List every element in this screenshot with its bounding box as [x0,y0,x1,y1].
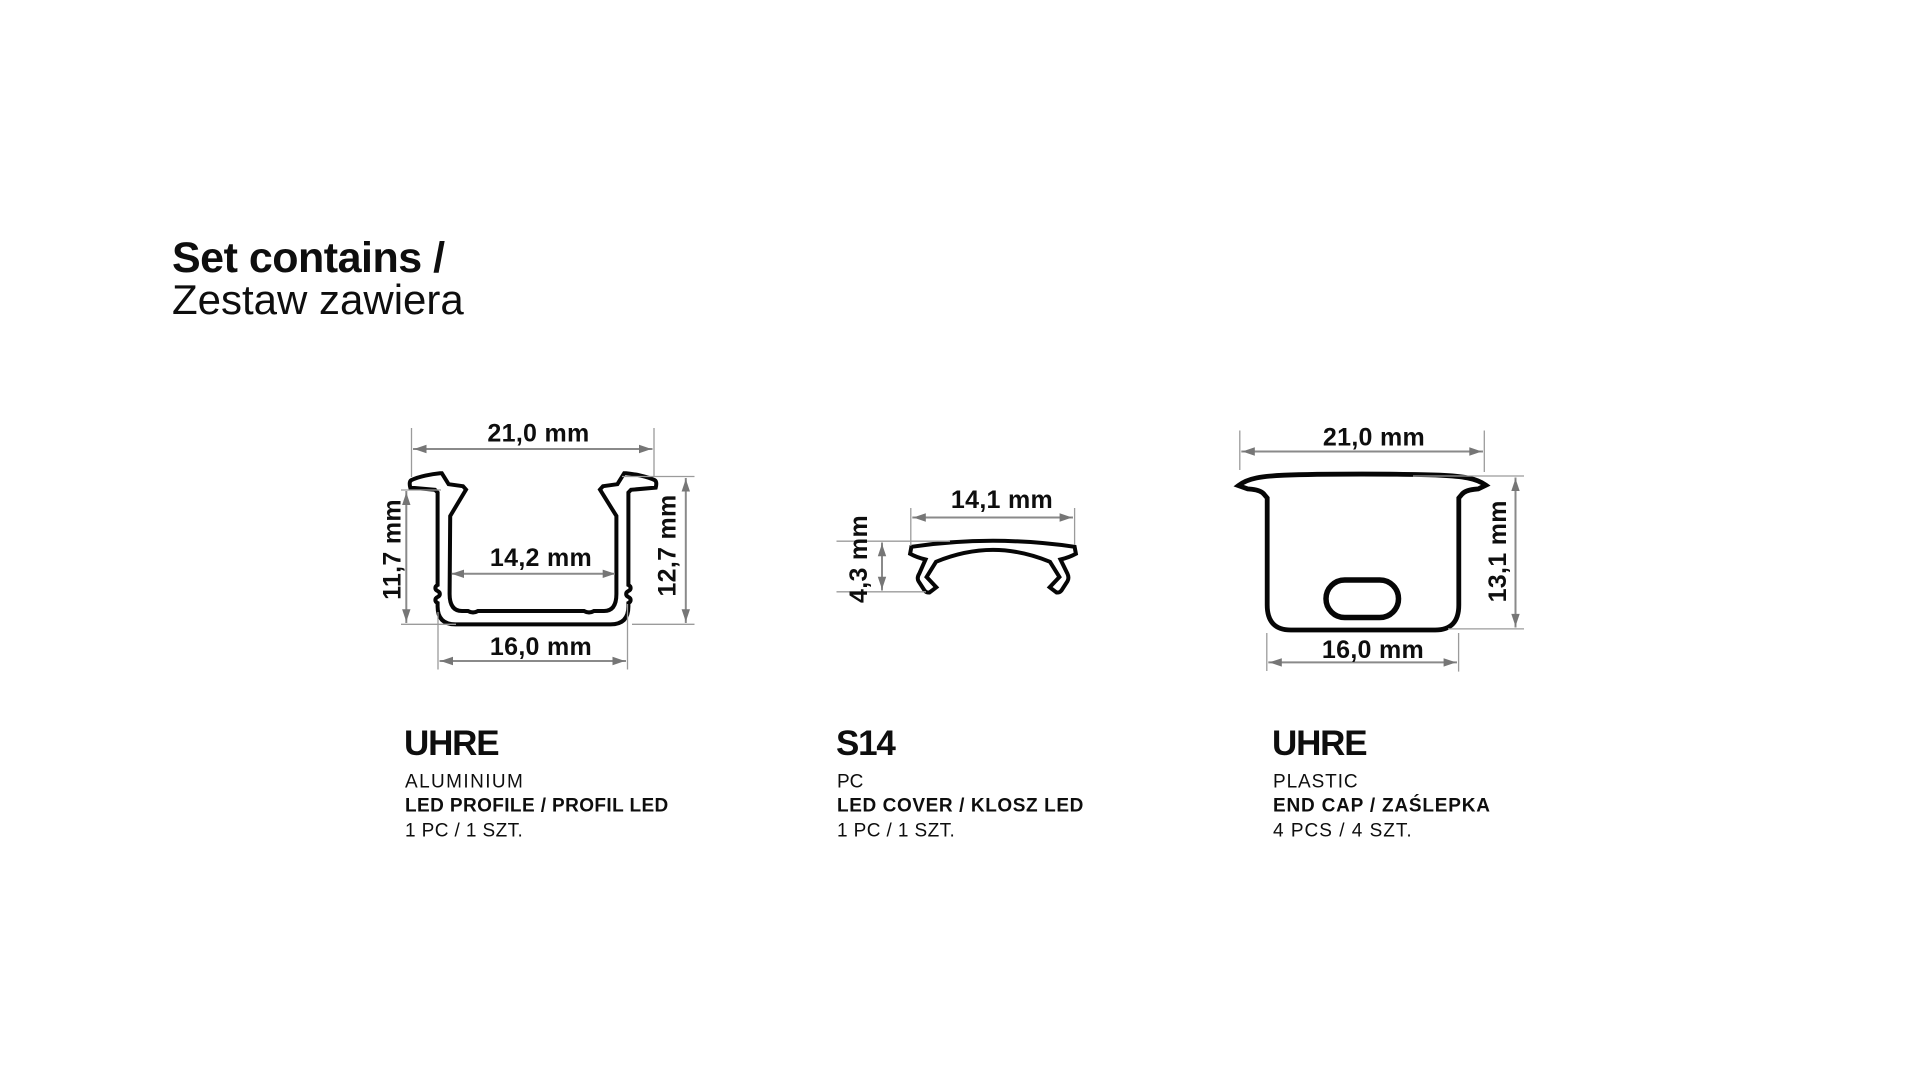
svg-text:LED PROFILE / PROFIL LED: LED PROFILE / PROFIL LED [405,796,669,817]
svg-text:UHRE: UHRE [404,724,498,763]
svg-text:LED COVER / KLOSZ LED: LED COVER / KLOSZ LED [837,796,1084,817]
svg-text:12,7 mm: 12,7 mm [654,494,682,596]
svg-text:UHRE: UHRE [1272,724,1366,763]
svg-text:14,1 mm: 14,1 mm [951,486,1053,514]
svg-text:PC: PC [837,772,863,793]
svg-text:ALUMINIUM: ALUMINIUM [405,772,524,793]
svg-text:21,0 mm: 21,0 mm [1323,424,1425,452]
svg-text:4 PCS / 4 SZT.: 4 PCS / 4 SZT. [1273,821,1413,842]
svg-text:4,3 mm: 4,3 mm [845,515,873,603]
svg-text:Zestaw zawiera: Zestaw zawiera [172,276,464,323]
svg-text:11,7 mm: 11,7 mm [379,499,407,600]
svg-text:1 PC / 1 SZT.: 1 PC / 1 SZT. [837,821,955,842]
svg-text:21,0 mm: 21,0 mm [487,420,589,448]
svg-text:16,0 mm: 16,0 mm [1322,636,1424,664]
svg-text:Set contains /: Set contains / [172,234,445,282]
svg-text:PLASTIC: PLASTIC [1273,772,1359,793]
svg-text:END CAP / ZAŚLEPKA: END CAP / ZAŚLEPKA [1273,795,1491,817]
svg-text:13,1 mm: 13,1 mm [1484,500,1512,602]
svg-text:16,0 mm: 16,0 mm [490,633,592,661]
svg-text:S14: S14 [836,724,896,763]
svg-text:14,2 mm: 14,2 mm [490,544,592,572]
svg-text:1 PC / 1 SZT.: 1 PC / 1 SZT. [405,821,523,842]
